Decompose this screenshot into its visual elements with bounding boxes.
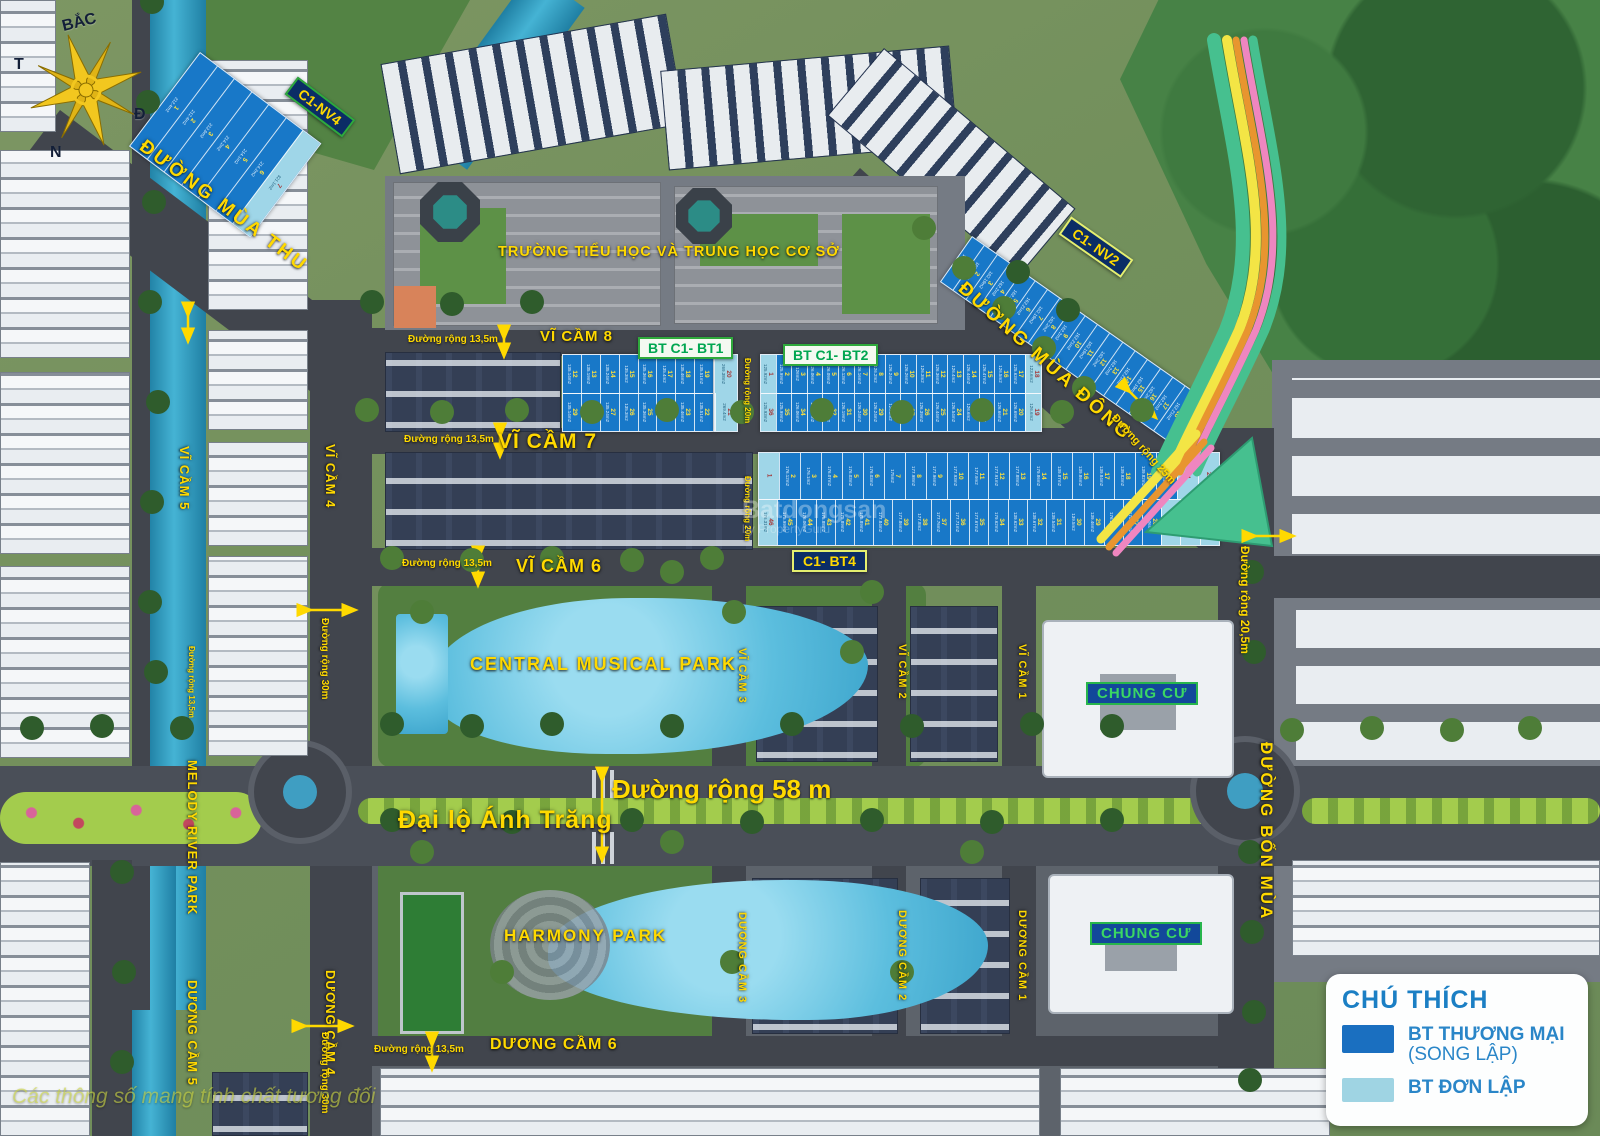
dim-13-5m: Đường rộng 13,5m: [404, 434, 494, 445]
lot-cell: 27175.99m2: [1123, 500, 1142, 546]
lot-cell: 26126.39m2: [916, 394, 932, 432]
lot-cell: 36177.71m2: [950, 500, 969, 546]
boulevard-median-east: [1302, 798, 1600, 824]
lot-cell: 14126.44m2: [963, 355, 979, 393]
block-tag-bt1: BT C1- BT1: [638, 337, 733, 359]
lot-cell: 34126.06m2: [791, 394, 807, 432]
lot-cell: 9126.24m2: [885, 355, 901, 393]
lot-cell: 34179.62m2: [988, 500, 1007, 546]
building-cluster: [380, 1068, 1040, 1136]
building-cluster: [0, 566, 130, 758]
lot-cell: 17139.84m2: [1093, 453, 1114, 499]
lot-cell: 39177.86m2: [892, 500, 911, 546]
lot-cell: 13135.19m2: [581, 355, 600, 393]
lot-cell: 7175m2: [884, 453, 905, 499]
dim-30m: Đường rộng 30m: [319, 618, 330, 700]
lot-cell: 11177.9m2: [968, 453, 989, 499]
lot-cell: 1125.92m2: [761, 355, 776, 393]
block-tag-nv2: C1- NV2: [1059, 216, 1134, 277]
compass-west-label: T: [14, 56, 24, 74]
park-label-central: CENTRAL MUSICAL PARK: [470, 654, 737, 675]
lot-cell: 37177.76m2: [931, 500, 950, 546]
lot-cell: 10177.93m2: [947, 453, 968, 499]
legend-item: BT THƯƠNG MẠI (SONG LẬP): [1342, 1025, 1572, 1065]
lot-cell: 28176.31m2: [1104, 500, 1123, 546]
lot-cell: 16126.5m2: [994, 355, 1010, 393]
masterplan-map: 1212.4m22212.4m23212.6m24214.2m25214.1m2…: [0, 0, 1600, 1136]
dim-13-5m: Đường rộng 13,5m: [408, 334, 498, 345]
lot-cell: 6176.03m2: [863, 453, 884, 499]
school-court: [394, 286, 436, 328]
lot-cell: 25135.36m2: [638, 394, 657, 432]
lot-cell: 16135.36m2: [638, 355, 657, 393]
building-cluster: [1060, 1068, 1330, 1136]
zone-label-vc3: VĨ CẦM 3: [736, 648, 748, 704]
harmony-pool: [548, 880, 988, 1020]
lot-cell: 3176.1m2: [800, 453, 821, 499]
lot-cell: 12177.91m2: [988, 453, 1009, 499]
lot-cell: 19135.51m2: [694, 355, 713, 393]
school-label: TRƯỜNG TIỂU HỌC VÀ TRUNG HỌC CƠ SỞ: [498, 244, 840, 260]
lot-cell: 35177.67m2: [969, 500, 988, 546]
apartment-grid: [1292, 378, 1600, 554]
zone-label-vc2: VĨ CẦM 2: [896, 644, 908, 700]
lot-cell: 28126.3m2: [885, 394, 901, 432]
lot-cell: 27135.24m2: [600, 394, 619, 432]
lot-cell: 24135.4m2: [656, 394, 675, 432]
lot-cell: 29139.46m2: [1084, 500, 1103, 546]
lot-cell: 32126.13m2: [822, 394, 838, 432]
lot-cell: 10126.26m2: [900, 355, 916, 393]
zone-label-dc2: DƯƠNG CẦM 2: [896, 910, 908, 1001]
villa-row-vc7: [385, 452, 753, 550]
dim-20m: Đường rộng 20m: [743, 358, 752, 423]
lot-cell: 17135.4m2: [656, 355, 675, 393]
lot-cell: 20269.38m2: [715, 355, 737, 393]
crosswalk: [592, 832, 618, 864]
school-pavilion: [420, 182, 480, 242]
lot-cell: 21269.4m2: [715, 393, 737, 431]
lot-cell: 22135.51m2: [694, 394, 713, 432]
lot-cell: 31126.19m2: [838, 394, 854, 432]
lot-cell: 18135.46m2: [675, 355, 694, 393]
chung-cu-label-1: CHUNG CƯ: [1086, 682, 1198, 705]
park-label-harmony: HARMONY PARK: [504, 926, 667, 946]
lot-cell: 16139.86m2: [1072, 453, 1093, 499]
compass-north-label: BẮC: [60, 10, 98, 36]
chung-cu-label-2: CHUNG CƯ: [1090, 922, 1202, 945]
building-cluster: [0, 150, 130, 358]
dim-13-5m: Đường rộng 13,5m: [374, 1044, 464, 1055]
watermark-center: Batdongsan by PropertyGuru: [742, 498, 886, 535]
compass-south-label: N: [50, 144, 62, 162]
school-yard: [842, 214, 930, 314]
lot-cell: 29135.14m2: [563, 394, 581, 432]
road-right-h: [1272, 556, 1600, 598]
building-cluster: [1292, 860, 1600, 956]
central-lap-pool: [396, 614, 448, 734]
road-label-bon-mua: ĐƯỜNG BỐN MÙA: [1256, 742, 1276, 920]
zone-label-dc6: DƯƠNG CẦM 6: [490, 1036, 618, 1054]
lot-cell: 8177.98m2: [905, 453, 926, 499]
building-cluster: [0, 0, 56, 132]
villa-block: [910, 606, 998, 762]
apartment-grid: [1296, 604, 1600, 760]
lot-cell: 12135.14m2: [563, 355, 581, 393]
building-cluster: [208, 330, 308, 430]
legend-title: CHÚ THÍCH: [1342, 986, 1572, 1015]
lot-cell: 18139.83m2: [1114, 453, 1135, 499]
lot-cell: 33139.62m2: [1008, 500, 1027, 546]
lot-cell: 38177.8m2: [912, 500, 931, 546]
dim-58m: Đường rộng 58 m: [612, 774, 831, 805]
zone-label-dc3: DƯƠNG CẦM 3: [736, 912, 748, 1003]
lot-cell: 15135.3m2: [619, 355, 638, 393]
lot-cell: 33126.09m2: [807, 394, 823, 432]
lot-cell: 27126.34m2: [900, 394, 916, 432]
lot-cell: 21: [1177, 453, 1198, 499]
lot-cell: 24126.54m2: [947, 394, 963, 432]
lot-cell: 19126.6m2: [1025, 394, 1041, 432]
lot-cell: 32139.67m2: [1027, 500, 1046, 546]
lot-cell: 11126.3m2: [916, 355, 932, 393]
lot-cell: 15126.47m2: [979, 355, 995, 393]
lot-cell: 14135.24m2: [600, 355, 619, 393]
lot-cell: 13126.4m2: [947, 355, 963, 393]
lot-cell: 36125.93m2: [761, 394, 776, 432]
villa-row-vc8: [385, 352, 561, 432]
legend-label: BT THƯƠNG MẠI: [1408, 1024, 1565, 1045]
park-label-melody: MELODY RIVER PARK: [185, 760, 200, 915]
legend-swatch-dark: [1342, 1025, 1394, 1053]
lot-block-bt1: 12135.14m213135.19m214135.24m215135.3m21…: [562, 354, 714, 432]
lot-cell: 30126.24m2: [854, 394, 870, 432]
road-30m-vertical: [310, 300, 372, 1136]
compass-east-label: Đ: [134, 106, 146, 124]
lot-cell: 1: [759, 453, 779, 499]
lot-cell: 9177.96m2: [926, 453, 947, 499]
lot-cell: 26135.3m2: [619, 394, 638, 432]
lot-cell: 13177.88m2: [1009, 453, 1030, 499]
lot-cell: 24175.89m2: [1180, 500, 1199, 546]
zone-label-vc4: VĨ CẦM 4: [323, 444, 338, 508]
road-label-anh-trang: Đại lộ Ánh Trăng: [398, 806, 613, 835]
lot-cell: 15139.87m2: [1051, 453, 1072, 499]
lot-cell: 14179.86m2: [1030, 453, 1051, 499]
lot-block-bt1-end: 20269.38m221269.4m2: [714, 354, 738, 432]
lot-cell: 5176.03m2: [842, 453, 863, 499]
lot-cell: 28135.19m2: [581, 394, 600, 432]
lot-cell: 26176.06m2: [1142, 500, 1161, 546]
legend-item: BT ĐƠN LẬP: [1342, 1078, 1572, 1102]
lot-cell: 35125.99m2: [776, 394, 792, 432]
dim-13-5m: Đường rộng 13,5m: [402, 558, 492, 569]
zone-label-vc1: VĨ CẦM 1: [1016, 644, 1028, 700]
zone-label-dc5: DƯƠNG CẦM 5: [185, 980, 200, 1086]
zone-label-vc6: VĨ CẦM 6: [516, 556, 602, 577]
school-pavilion: [676, 188, 732, 244]
legend-label: BT ĐƠN LẬP: [1408, 1077, 1526, 1098]
lot-cell: 21126.66m2: [994, 394, 1010, 432]
lot-cell: 31139.54m2: [1046, 500, 1065, 546]
zone-label-vc5: VĨ CẦM 5: [177, 446, 192, 510]
zone-label-vc7: VĨ CẦM 7: [498, 430, 597, 454]
melody-median: [0, 792, 262, 844]
lot-cell: 17125.63m2: [1010, 355, 1026, 393]
lot-cell: 12126.36m2: [932, 355, 948, 393]
lot-cell: 29126.24m2: [869, 394, 885, 432]
lot-cell: 30139.5m2: [1065, 500, 1084, 546]
lot-cell: 22126.64m2: [979, 394, 995, 432]
zone-label-vc8: VĨ CẦM 8: [540, 328, 613, 345]
lot-cell: 25175.88m2: [1161, 500, 1180, 546]
harmony-turf: [400, 892, 464, 1034]
building-cluster: [208, 556, 308, 756]
lot-cell: 20126.69m2: [1010, 394, 1026, 432]
legend-sublabel: (SONG LẬP): [1408, 1044, 1518, 1065]
legend-swatch-light: [1342, 1078, 1394, 1102]
block-tag-bt2: BT C1- BT2: [783, 344, 878, 366]
dim-20-5m: Đường rộng 20,5m: [1238, 546, 1252, 654]
lot-cell: 23135.46m2: [675, 394, 694, 432]
lot-cell: 22: [1198, 453, 1219, 499]
watermark-disclaimer: Các thông số mang tính chất tương đối: [12, 1085, 375, 1109]
lot-cell: 23126.6m2: [963, 394, 979, 432]
zone-label-dc1: DƯƠNG CẦM 1: [1016, 910, 1028, 1001]
building-cluster: [0, 372, 130, 554]
lot-cell: 23175.89m2: [1200, 500, 1219, 546]
dim-13-5m-v: Đường rộng 13,5m: [187, 646, 196, 718]
block-tag-bt4: C1- BT4: [792, 550, 867, 572]
lot-cell: 25126.44m2: [932, 394, 948, 432]
lot-cell: 2176.12m2: [779, 453, 800, 499]
legend: CHÚ THÍCH BT THƯƠNG MẠI (SONG LẬP) BT ĐƠ…: [1326, 974, 1588, 1126]
lot-cell: 4176.07m2: [821, 453, 842, 499]
building-cluster: [208, 442, 308, 546]
